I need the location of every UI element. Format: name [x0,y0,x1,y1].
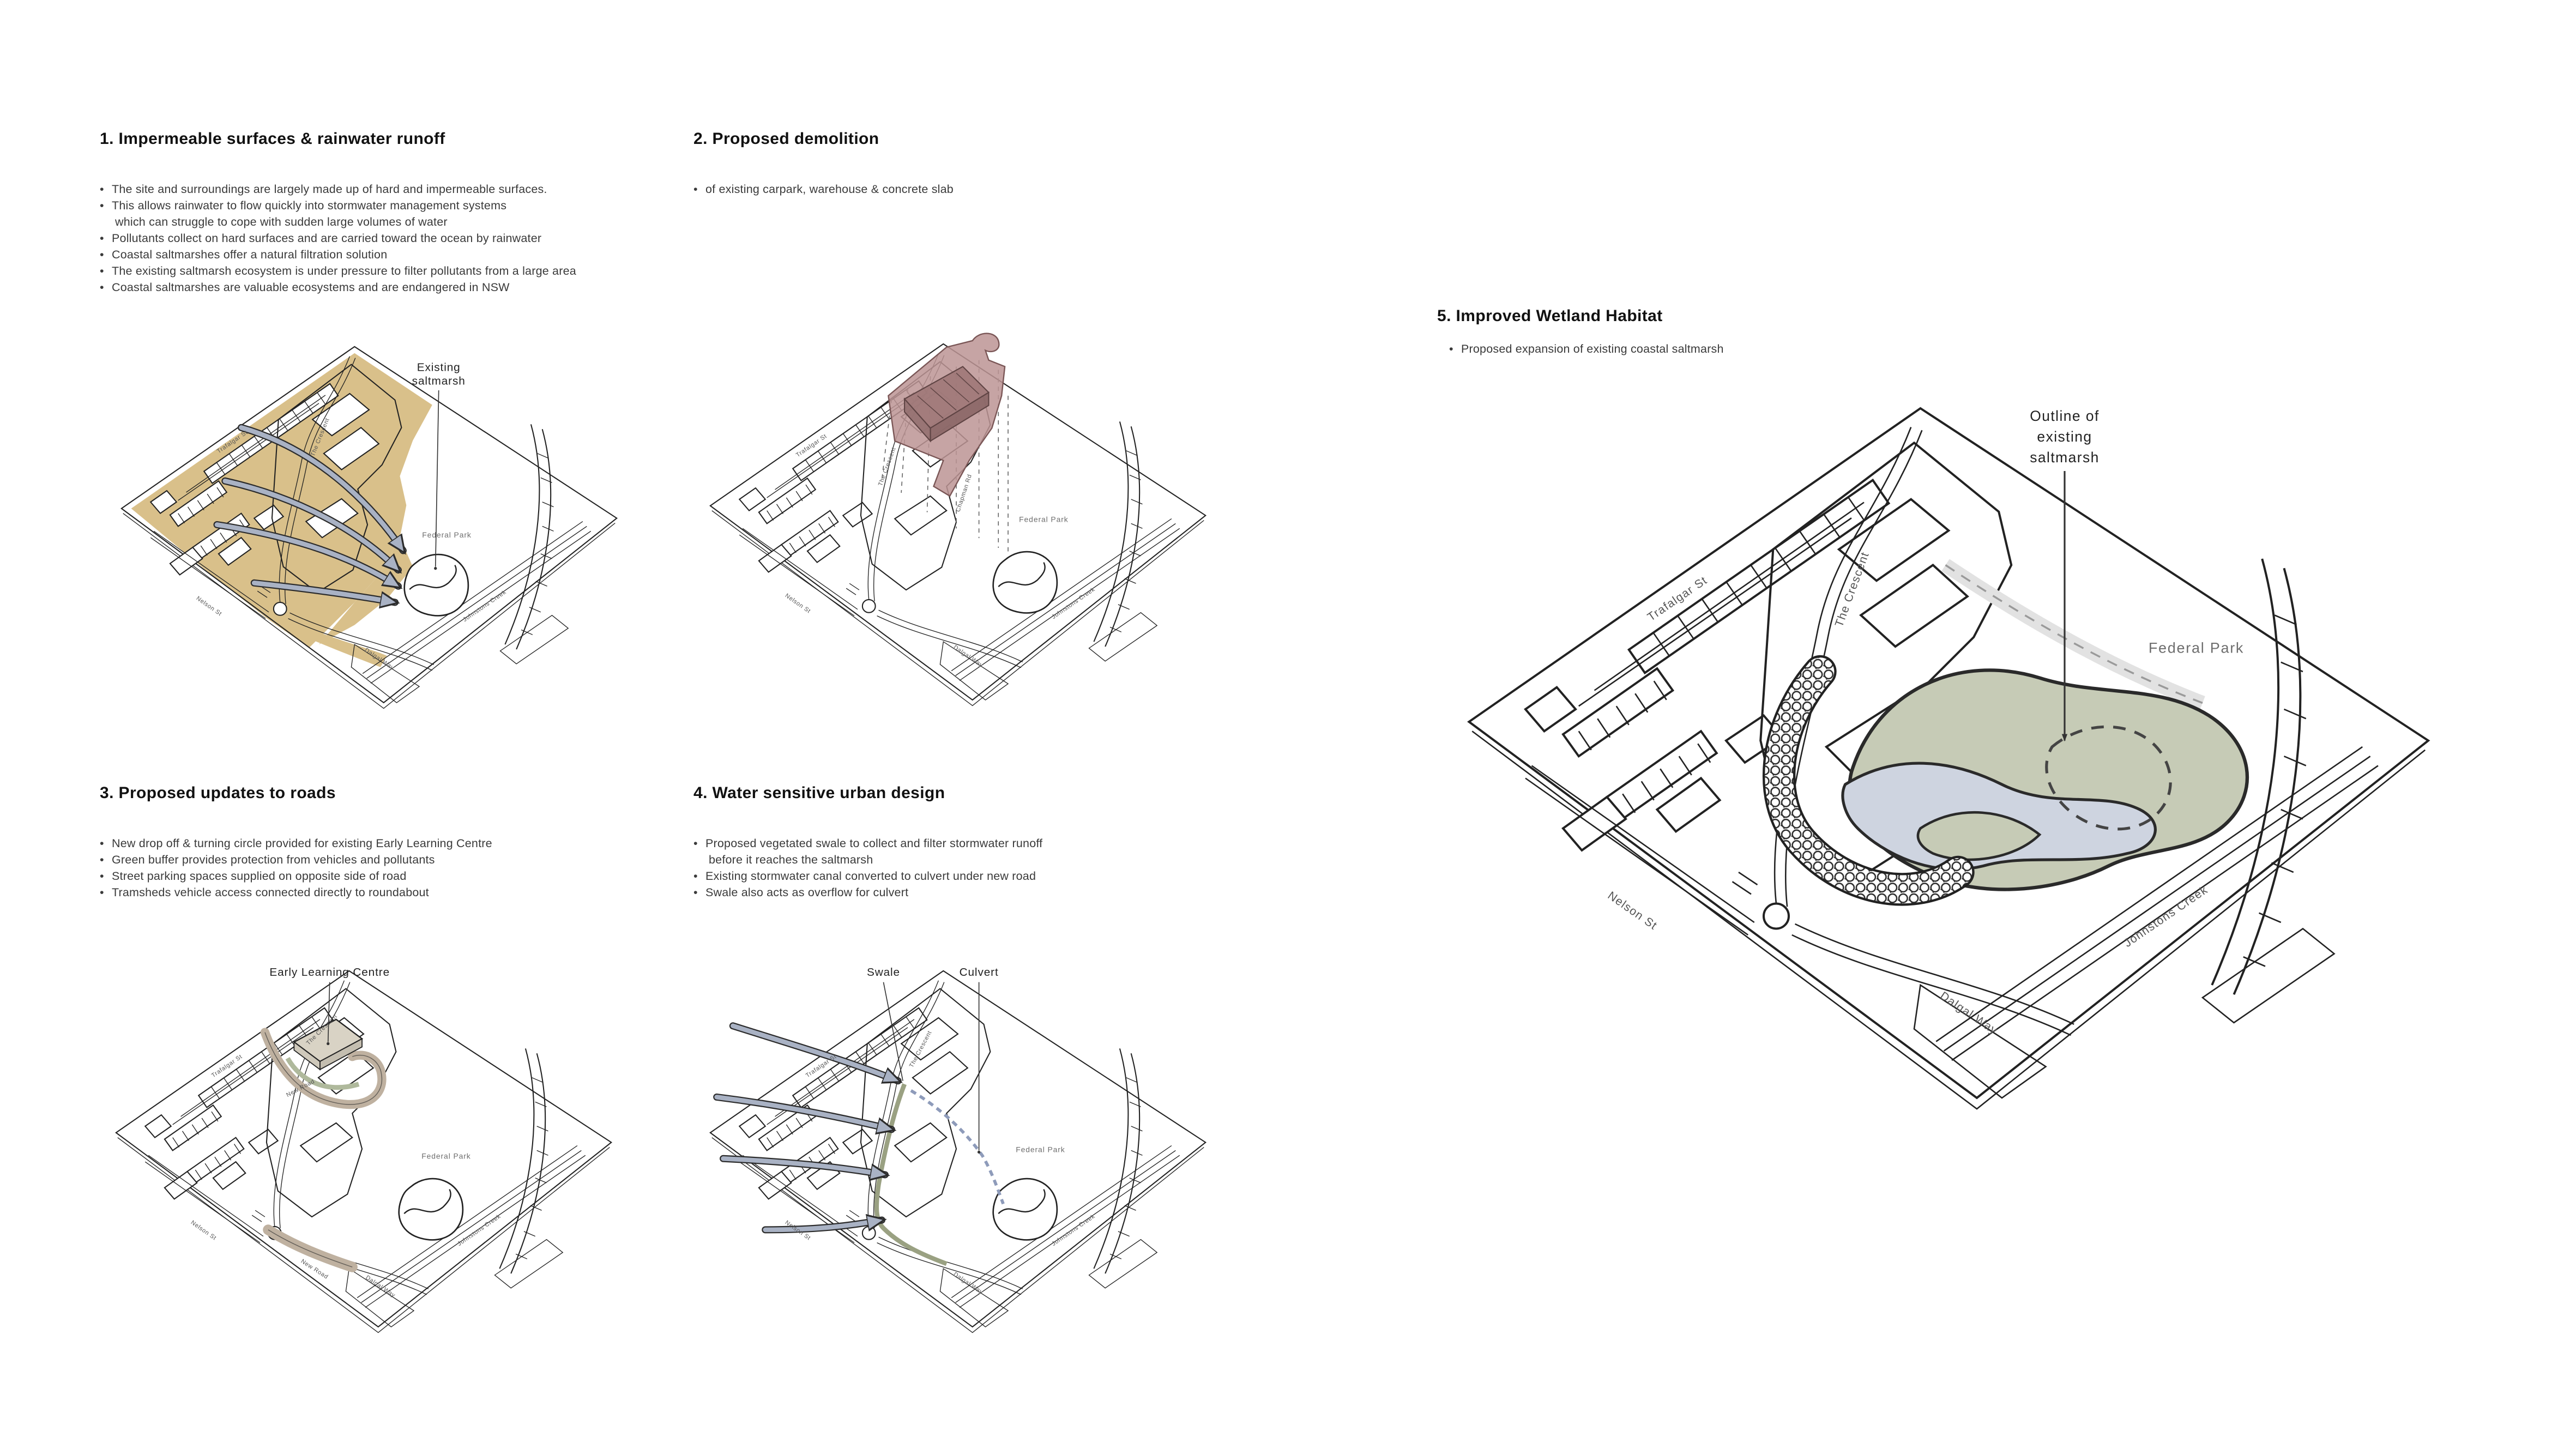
diagram-proposed-demolition: Federal Park Trafalgar St The Crescent C… [701,324,1218,713]
bullet-text: Street parking spaces supplied on opposi… [112,868,406,884]
bullet-text: Coastal saltmarshes offer a natural filt… [112,246,387,263]
street-label-dalgal: Dalgal Way [364,1274,396,1299]
bullet-line: of existing carpark, warehouse & concret… [693,181,1184,197]
diagram-4-labels: Swale Culvert Federal Park Trafalgar St … [784,966,1096,1296]
bullet-line: Coastal saltmarshes are valuable ecosyst… [100,279,645,295]
section-4: 4. Water sensitive urban design Proposed… [693,784,1184,901]
bullet-text: The existing saltmarsh ecosystem is unde… [112,263,576,279]
bullet-dot [100,181,112,197]
bullet-text: which can struggle to cope with sudden l… [115,214,448,230]
saltmarsh-blob [993,1179,1057,1240]
callout-outline-line1: Outline of [2030,408,2100,424]
label-federal-park: Federal Park [422,530,471,539]
street-label-nelson: Nelson St [190,1219,218,1242]
diagram-road-updates: Early Learning Centre New Road New Road … [106,951,624,1340]
callout-existing-saltmarsh-line2: saltmarsh [412,375,466,388]
bullet-dot [100,197,112,214]
bullet-text: Existing stormwater canal converted to c… [705,868,1036,884]
bullet-text: before it reaches the saltmarsh [709,852,873,868]
bullet-line: This allows rainwater to flow quickly in… [100,197,645,214]
bullet-text: This allows rainwater to flow quickly in… [112,197,506,214]
bullet-text: Swale also acts as overflow for culvert [705,884,908,901]
expanded-saltmarsh [1843,670,2247,889]
callout-outline-line3: saltmarsh [2030,449,2100,466]
street-label-crescent: The Crescent [877,446,897,487]
label-federal-park: Federal Park [1016,1145,1065,1154]
label-federal-park: Federal Park [421,1151,470,1160]
section-2-title: 2. Proposed demolition [693,130,1184,148]
street-label-johnstons-creek: Johnstons Creek [1051,586,1096,620]
street-label-nelson: Nelson St [784,593,812,615]
bullet-text: Green buffer provides protection from ve… [112,852,435,868]
callout-existing-saltmarsh-line1: Existing [417,361,461,373]
bullet-line-continuation: before it reaches the saltmarsh [693,852,1184,868]
section-5-bullets: Proposed expansion of existing coastal s… [1437,341,2091,357]
section-1: 1. Impermeable surfaces & rainwater runo… [100,130,645,295]
bullet-dot [693,835,705,852]
section-4-title: 4. Water sensitive urban design [693,784,1184,802]
bullet-line: Proposed expansion of existing coastal s… [1449,341,2091,357]
bullet-line: Street parking spaces supplied on opposi… [100,868,645,884]
callout-culvert: Culvert [960,966,999,979]
base-site-map [116,971,611,1333]
bullet-dot [100,852,112,868]
saltmarsh-blob [399,1179,463,1240]
bullet-line: Proposed vegetated swale to collect and … [693,835,1184,852]
section-2: 2. Proposed demolition of existing carpa… [693,130,1184,197]
bullet-text: of existing carpark, warehouse & concret… [705,181,954,197]
bullet-line: Tramsheds vehicle access connected direc… [100,884,645,901]
section-5-title: 5. Improved Wetland Habitat [1437,307,2091,325]
bullet-dot [100,835,112,852]
bullet-text: Proposed vegetated swale to collect and … [705,835,1042,852]
street-label-nelson: Nelson St [195,595,223,618]
bullet-dot [1449,341,1461,357]
bullet-line: Green buffer provides protection from ve… [100,852,645,868]
callout-early-learning-centre: Early Learning Centre [269,966,390,979]
diagram-impermeable-surfaces: Existing saltmarsh Federal Park Trafalga… [112,327,630,716]
section-3: 3. Proposed updates to roads New drop of… [100,784,645,901]
section-1-title: 1. Impermeable surfaces & rainwater runo… [100,130,645,148]
diagram-improved-wetland-habitat: Outline of existing saltmarsh Federal Pa… [1374,371,2530,1123]
bullet-dot [693,884,705,901]
bullet-dot [693,181,705,197]
bullet-dot [693,868,705,884]
bullet-dot [100,230,112,246]
section-4-bullets: Proposed vegetated swale to collect and … [693,835,1184,901]
bullet-line: Existing stormwater canal converted to c… [693,868,1184,884]
bullet-dot [100,279,112,295]
section-3-title: 3. Proposed updates to roads [100,784,645,802]
bullet-text: Proposed expansion of existing coastal s… [1461,341,1724,357]
street-label-johnstons-creek: Johnstons Creek [1051,1213,1096,1247]
bullet-text: Coastal saltmarshes are valuable ecosyst… [112,279,510,295]
street-label-johnstons-creek: Johnstons Creek [456,1213,502,1247]
bullet-line: Coastal saltmarshes offer a natural filt… [100,246,645,263]
callout-swale: Swale [867,966,900,979]
section-1-bullets: The site and surroundings are largely ma… [100,181,645,295]
bullet-line: New drop off & turning circle provided f… [100,835,645,852]
street-label-johnstons-creek: Johnstons Creek [2121,883,2210,950]
bullet-text: Pollutants collect on hard surfaces and … [112,230,541,246]
section-5: 5. Improved Wetland Habitat Proposed exp… [1437,307,2091,357]
bullet-dot [100,246,112,263]
street-label-nelson: Nelson St [1606,889,1660,932]
diagram-water-sensitive-design: Swale Culvert Federal Park Trafalgar St … [701,951,1218,1340]
bullet-text: Tramsheds vehicle access connected direc… [112,884,429,901]
section-2-bullets: of existing carpark, warehouse & concret… [693,181,1184,197]
bullet-line-continuation: which can struggle to cope with sudden l… [100,214,645,230]
bullet-line: The existing saltmarsh ecosystem is unde… [100,263,645,279]
section-3-bullets: New drop off & turning circle provided f… [100,835,645,901]
bullet-text: New drop off & turning circle provided f… [112,835,492,852]
bullet-dot [100,884,112,901]
street-label-johnstons-creek: Johnstons Creek [462,589,508,623]
street-label-dalgal: Dalgal Way [1938,989,2000,1037]
saltmarsh-blob [993,552,1057,613]
bullet-line: Pollutants collect on hard surfaces and … [100,230,645,246]
roundabout-road-patch [268,1230,352,1267]
label-federal-park: Federal Park [1019,515,1068,523]
bullet-dot [100,263,112,279]
callout-outline-line2: existing [2037,428,2092,445]
demolition-massing [888,334,1005,496]
bullet-dot [100,868,112,884]
label-federal-park: Federal Park [2149,640,2244,656]
bullet-line: The site and surroundings are largely ma… [100,181,645,197]
bullet-text: The site and surroundings are largely ma… [112,181,547,197]
bullet-line: Swale also acts as overflow for culvert [693,884,1184,901]
saltmarsh-blob [405,554,468,615]
